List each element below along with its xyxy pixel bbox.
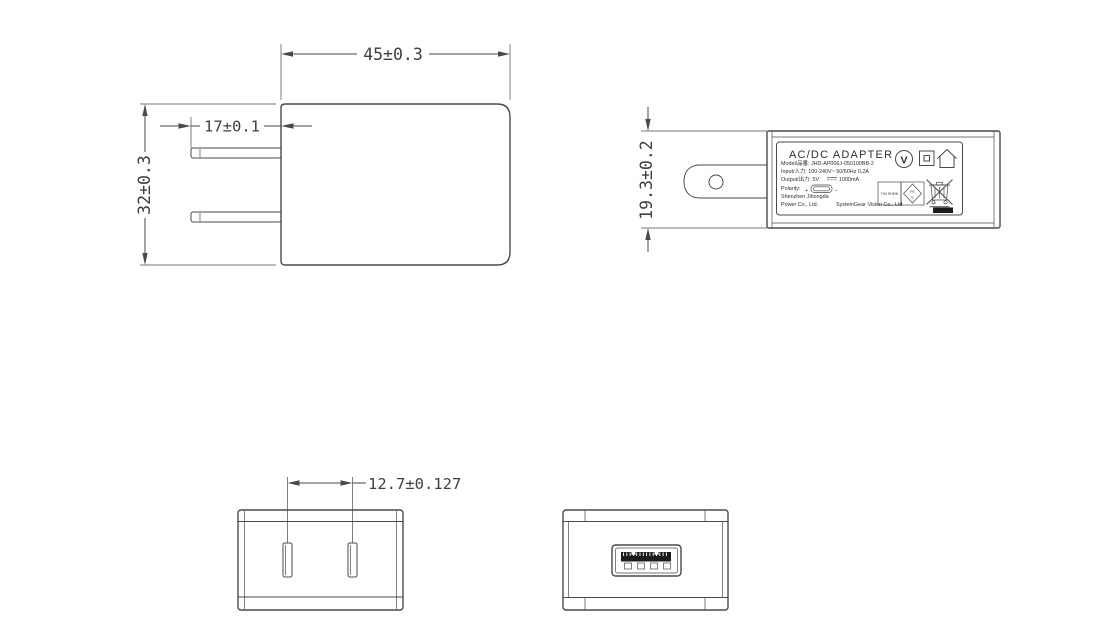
label-polarity-minus: − — [835, 188, 838, 194]
adapter-body-outline — [281, 104, 510, 265]
prong-blade-top — [191, 148, 281, 158]
indoor-use-icon — [938, 150, 957, 168]
top-view: 12.7±0.127 — [238, 475, 461, 610]
label-company-line2: Power Co., Ltd. — [781, 202, 818, 208]
dim-thickness: 19.3±0.2 — [637, 107, 767, 252]
pse-diamond-icon: PS E — [901, 182, 924, 205]
v-mark-icon: V — [896, 151, 913, 168]
side-prong — [684, 165, 767, 198]
label-company-line1: Shenzhen Jihongda — [781, 194, 829, 200]
micro-usb-polarity-icon — [811, 185, 832, 193]
product-label: AC/DC ADAPTER Model/品番: JHD-AP006J-05010… — [777, 142, 963, 215]
dc-symbol-icon — [827, 177, 837, 179]
label-output-line: Output/出力: 5V — [781, 175, 819, 183]
weee-bin-icon — [927, 180, 953, 207]
prong-blade-bottom — [191, 212, 281, 222]
label-model-line: Model/品番: JHD-AP006J-050100BB-2 — [781, 160, 874, 167]
dim-pin-pitch: 12.7±0.127 — [288, 475, 462, 543]
top-view-outline — [238, 510, 403, 610]
label-input-line: Input/入力: 100-240V~ 50/60Hz 0,2A — [781, 167, 869, 175]
engineering-drawing-canvas: 45±0.3 17±0.1 32±0.3 — [0, 0, 1100, 642]
usb-face-view — [563, 510, 728, 610]
dim-height-text: 32±0.3 — [135, 155, 154, 215]
class-ii-icon — [920, 151, 935, 166]
dim-width: 45±0.3 — [281, 44, 510, 100]
prong-hole — [709, 175, 723, 189]
blade-slot-left — [283, 543, 292, 577]
svg-text:E: E — [911, 196, 913, 200]
svg-text:TÜV RHEIN: TÜV RHEIN — [881, 192, 899, 196]
label-title: AC/DC ADAPTER — [789, 149, 893, 161]
dim-blade-length: 17±0.1 — [160, 117, 312, 148]
usb-port — [612, 545, 681, 576]
svg-text:V: V — [900, 154, 907, 166]
side-view: 19.3±0.2 AC/DC ADAPTER Model/品番: JHD-AP0… — [637, 107, 1000, 252]
dim-thickness-text: 19.3±0.2 — [637, 140, 656, 219]
label-barcode-block — [933, 208, 953, 214]
dim-pin-pitch-text: 12.7±0.127 — [368, 475, 461, 493]
dim-width-text: 45±0.3 — [363, 45, 423, 64]
usb-contact-pins — [625, 563, 671, 569]
svg-text:PS: PS — [910, 190, 914, 194]
usb-contact-tongue — [621, 552, 671, 562]
blade-slot-right — [348, 543, 357, 577]
label-polarity: Polarity: — [781, 186, 800, 192]
dim-blade-length-text: 17±0.1 — [204, 118, 260, 136]
label-output-current: 1000mA — [839, 177, 859, 183]
front-view: 45±0.3 17±0.1 32±0.3 — [135, 44, 510, 265]
